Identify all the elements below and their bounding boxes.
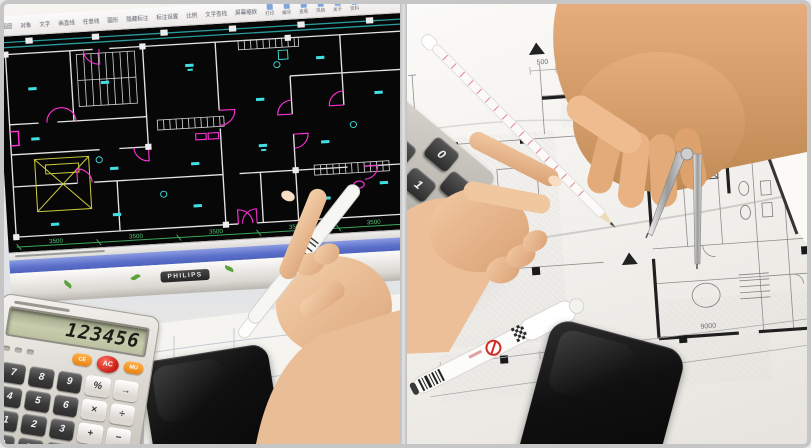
photo-collage: 图层 对象 文字 画直线 任意线 圆形 隐藏标注 标注设置 比例 文字查找 屏幕… <box>0 0 811 448</box>
pointing-hand <box>4 4 400 444</box>
right-hand-compass <box>407 4 807 444</box>
right-photo-panel: 500 200 3400 9000 30700 0 0 1 4 <box>407 4 807 444</box>
panel-divider <box>400 4 407 444</box>
left-photo-panel: 图层 对象 文字 画直线 任意线 圆形 隐藏标注 标注设置 比例 文字查找 屏幕… <box>4 4 400 444</box>
